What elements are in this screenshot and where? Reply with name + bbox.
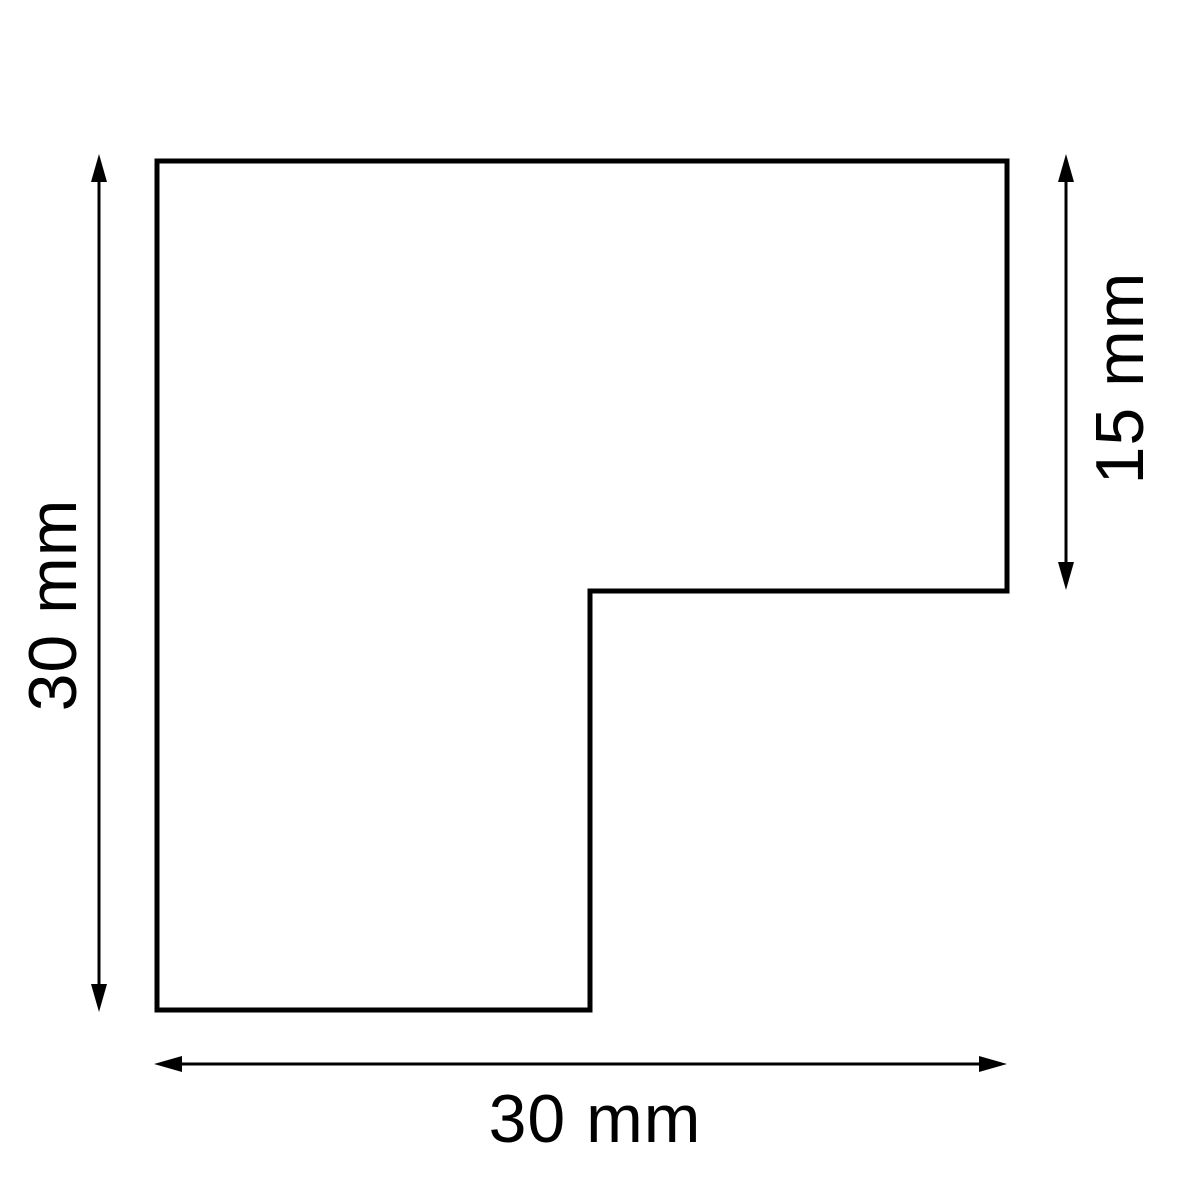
left-dimension-label: 30 mm (15, 499, 91, 712)
left-dimension-arrow-down-icon (91, 984, 107, 1012)
right-dimension-arrow-down-icon (1058, 562, 1074, 590)
right-dimension-arrow-up-icon (1058, 154, 1074, 182)
bottom-dimension-arrow-right-icon (979, 1056, 1007, 1072)
dimension-bottom-width: 30 mm (154, 1056, 1007, 1157)
l-bracket-outline (157, 161, 1007, 1010)
dimension-right-height: 15 mm (1058, 154, 1158, 590)
technical-drawing-canvas: 30 mm 15 mm 30 mm (0, 0, 1199, 1200)
bottom-dimension-arrow-left-icon (154, 1056, 182, 1072)
left-dimension-arrow-up-icon (91, 154, 107, 182)
bottom-dimension-label: 30 mm (489, 1081, 702, 1157)
right-dimension-label: 15 mm (1082, 272, 1158, 485)
dimension-left-height: 30 mm (15, 154, 107, 1012)
l-bracket-dimension-drawing: 30 mm 15 mm 30 mm (0, 0, 1199, 1200)
